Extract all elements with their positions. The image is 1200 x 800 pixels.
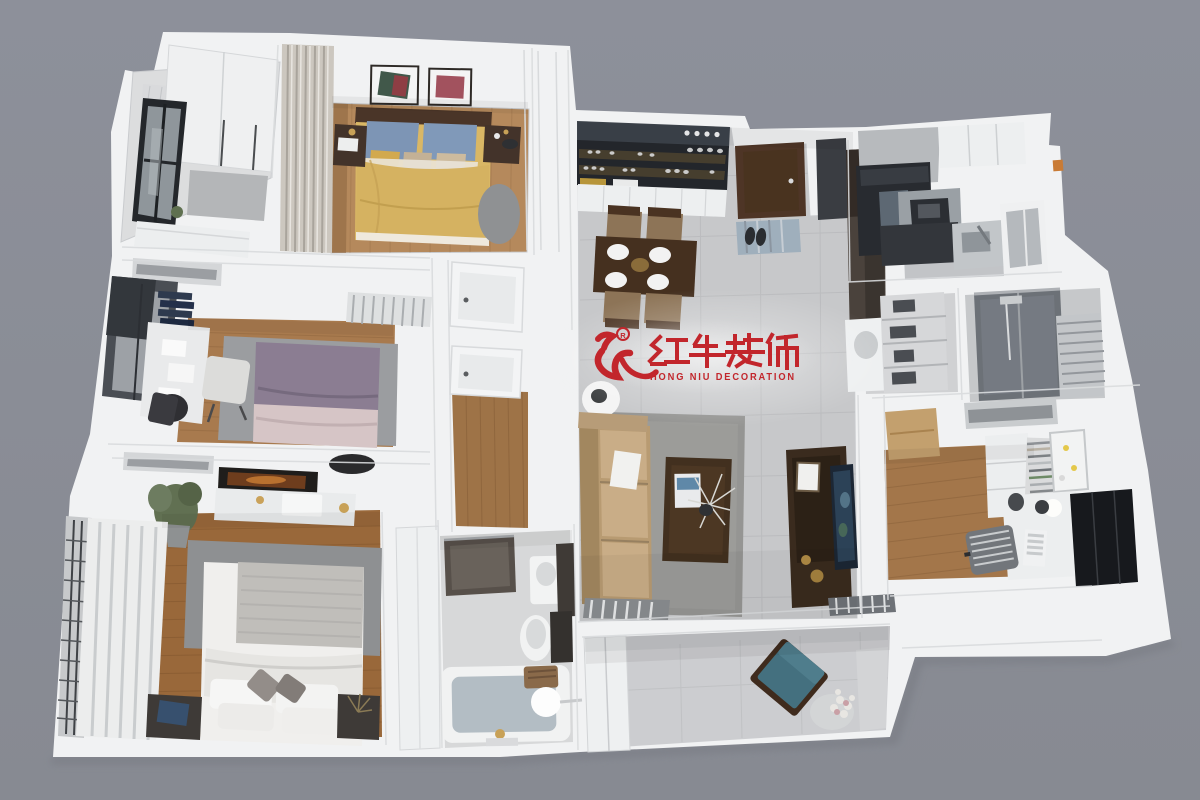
svg-text:HONG NIU DECORATION: HONG NIU DECORATION <box>650 372 796 383</box>
svg-text:R: R <box>620 331 626 340</box>
